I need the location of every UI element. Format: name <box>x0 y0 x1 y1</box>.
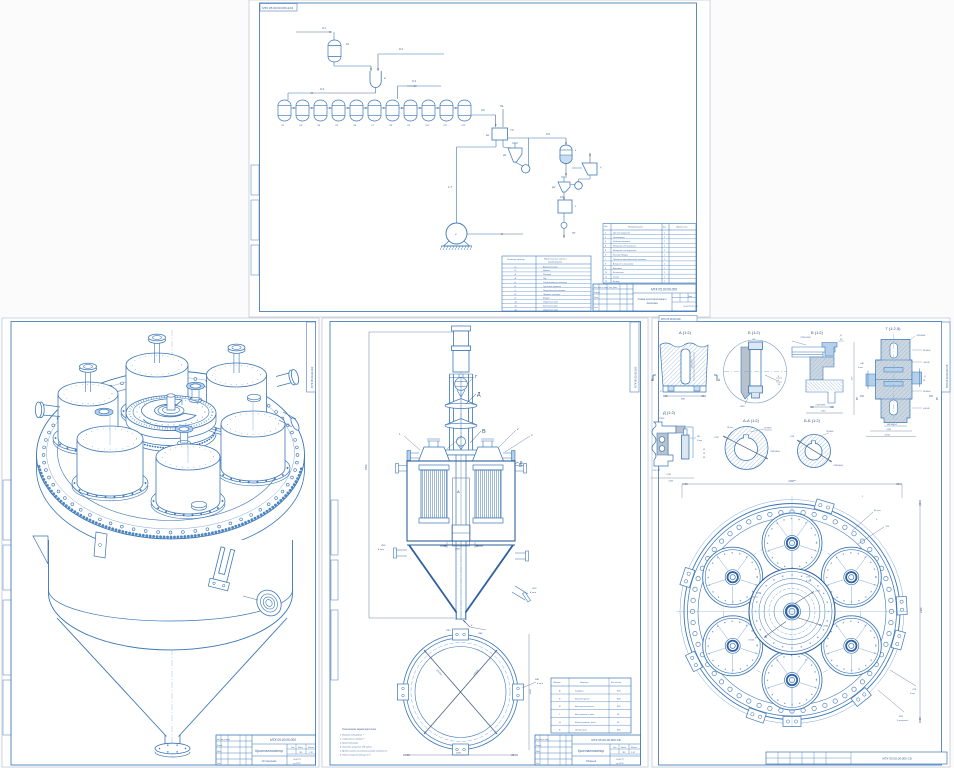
svg-text:5: 5 <box>519 463 522 469</box>
svg-text:гр.72-6: гр.72-6 <box>293 763 301 765</box>
svg-text:Выход В суспен: Выход В суспен <box>575 697 591 700</box>
svg-text:-9-: -9- <box>514 298 517 300</box>
svg-text:-3-: -3- <box>514 274 517 276</box>
svg-text:5. Время расхода до рабочих ус: 5. Время расхода до рабочих условий част… <box>340 750 388 753</box>
svg-text:Утв.: Утв. <box>536 763 540 765</box>
svg-text:42 отв: 42 отв <box>874 509 881 512</box>
svg-text:Обознач.: Обознач. <box>553 682 561 684</box>
svg-text:Конденсат: Конденсат <box>613 271 624 274</box>
svg-text:30 Н8/е8: 30 Н8/е8 <box>923 350 930 352</box>
svg-text:Бункер: Бункер <box>613 281 620 283</box>
svg-text:Суспензия диоксана: Суспензия диоксана <box>543 285 561 288</box>
svg-text:Вход промывн. воды: Вход промывн. воды <box>575 713 595 716</box>
svg-text:∅107: ∅107 <box>714 436 720 439</box>
svg-text:16 отв: 16 отв <box>727 427 733 429</box>
svg-text:2 отв: 2 отв <box>696 440 702 442</box>
svg-text:1: 1 <box>664 255 665 257</box>
svg-text:МТК 05.00.00.000 СБ: МТК 05.00.00.000 СБ <box>591 738 620 742</box>
svg-text:Свободноводная жидкость: Свободноводная жидкость <box>543 281 567 284</box>
svg-text:Разраб.: Разраб. <box>594 292 601 294</box>
svg-text:Лит: Лит <box>290 747 295 749</box>
svg-text:Раствор: Раствор <box>543 274 551 276</box>
svg-text:МТК 05.00.00.000: МТК 05.00.00.000 <box>661 318 681 321</box>
svg-text:-10-: -10- <box>514 302 518 304</box>
svg-text:0.4: 0.4 <box>412 79 416 83</box>
svg-text:∅230: ∅230 <box>815 590 821 593</box>
svg-text:1: 1 <box>664 241 665 243</box>
svg-text:ГП: ГП <box>572 231 575 235</box>
svg-text:1: 1 <box>664 281 665 283</box>
svg-text:12 Н9/h9: 12 Н9/h9 <box>764 428 771 430</box>
svg-text:4 отв: 4 отв <box>806 580 811 583</box>
svg-text:Приёмник отработанной кислоты: Приёмник отработанной кислоты <box>613 258 647 261</box>
svg-text:Диоксан: Диоксан <box>542 270 550 272</box>
svg-text:Отработанная кислота: Отработанная кислота <box>543 290 565 292</box>
svg-text:Лит: Лит <box>612 747 617 749</box>
svg-text:Пров.: Пров. <box>536 751 541 753</box>
svg-text:4 отв: 4 отв <box>378 548 385 551</box>
svg-text:Утв.: Утв. <box>594 307 598 309</box>
svg-text:гр.72-6: гр.72-6 <box>616 763 624 765</box>
svg-text:Рубашка кислоты: Рубашка кислоты <box>613 241 631 243</box>
svg-text:1: 1 <box>605 232 606 234</box>
svg-text:Примечание: Примечание <box>676 227 688 229</box>
svg-text:Лист: Лист <box>687 296 693 298</box>
svg-text:30 Н8/е8: 30 Н8/е8 <box>923 391 930 393</box>
svg-text:СибГТУ ПС-72: СибГТУ ПС-72 <box>683 306 699 308</box>
svg-text:7.8: 7.8 <box>510 128 514 132</box>
svg-text:2160: 2160 <box>920 607 923 614</box>
svg-text:6. Объём аппарата 10м.куб 1 м³: 6. Объём аппарата 10м.куб 1 м³ <box>340 754 371 757</box>
svg-text:-6-: -6- <box>514 286 517 288</box>
svg-text:МТК 05.00.00.000: МТК 05.00.00.000 <box>270 738 296 742</box>
svg-text:0.1: 0.1 <box>322 26 326 30</box>
svg-text:Г (1:2,5): Г (1:2,5) <box>886 326 902 331</box>
svg-text:1: 1 <box>664 259 665 261</box>
svg-text:1: 1 <box>664 246 665 248</box>
svg-text:Название: Название <box>580 682 588 684</box>
svg-text:0.6: 0.6 <box>546 132 550 136</box>
svg-text:Вакуум: Вакуум <box>543 298 550 300</box>
svg-text:∅56 Н8: ∅56 Н8 <box>923 407 929 410</box>
svg-text:Наименование среды в: Наименование среды в <box>544 258 568 261</box>
svg-text:11: 11 <box>605 277 607 279</box>
svg-text:-8-: -8- <box>514 294 517 296</box>
svg-text:-2-: -2- <box>514 270 517 272</box>
svg-text:Д (1:2): Д (1:2) <box>663 410 676 415</box>
svg-text:МТК 05.00.00.000 А2Э: МТК 05.00.00.000 А2Э <box>262 6 293 10</box>
svg-text:-4-: -4- <box>514 277 517 280</box>
svg-text:1. Ёмкость 10м.куб/час **: 1. Ёмкость 10м.куб/час ** <box>340 734 365 737</box>
svg-text:м: м <box>384 77 386 80</box>
svg-text:4: 4 <box>605 245 606 248</box>
svg-text:Пар: Пар <box>543 278 546 280</box>
svg-text:Испарить для осушения: Испарить для осушения <box>613 249 637 252</box>
svg-text:Масшт: Масшт <box>631 747 638 749</box>
svg-text:∅640: ∅640 <box>823 625 829 628</box>
svg-text:1: 1 <box>664 268 665 270</box>
svg-text:4. Частота вращения 120 об/мин: 4. Частота вращения 120 об/мин <box>340 746 373 749</box>
svg-text:∅42 Н8/к8: ∅42 Н8/к8 <box>916 334 926 337</box>
svg-text:Схема кристаллизации: Схема кристаллизации <box>638 297 667 301</box>
svg-text:-5-: -5- <box>514 282 517 284</box>
svg-text:∅42 Н8/к8: ∅42 Н8/к8 <box>770 450 781 453</box>
svg-text:СибГТУ: СибГТУ <box>293 759 302 761</box>
svg-text:6 отв: 6 отв <box>858 367 863 369</box>
svg-text:2200: 2200 <box>530 688 532 695</box>
svg-text:МТК 05.00.00.000 СБ: МТК 05.00.00.000 СБ <box>946 364 949 388</box>
svg-text:∅36 Н8/к8: ∅36 Н8/к8 <box>833 464 844 467</box>
svg-text:4400: 4400 <box>455 548 461 551</box>
svg-text:Масса: Масса <box>621 747 626 749</box>
svg-text:Кристаллизатор: Кристаллизатор <box>255 749 283 753</box>
svg-text:Уравнемеры: Уравнемеры <box>613 237 625 239</box>
svg-text:∅56 Н8: ∅56 Н8 <box>923 361 929 364</box>
svg-text:1: 1 <box>664 272 665 274</box>
svg-text:10 Н9/h9: 10 Н9/h9 <box>826 431 833 433</box>
svg-text:1: 1 <box>664 232 665 234</box>
svg-text:Испарить для диоксана: Испарить для диоксана <box>613 245 636 248</box>
svg-text:2200: 2200 <box>455 753 462 755</box>
svg-text:6 отв: 6 отв <box>910 693 915 695</box>
svg-text:Цех для осушения: Цех для осушения <box>613 231 631 234</box>
svg-text:∅125 Н9/f9: ∅125 Н9/f9 <box>815 404 826 407</box>
svg-text:Техническая характеристика: Техническая характеристика <box>342 728 377 731</box>
svg-text:Условное обознач.: Условное обознач. <box>507 259 525 261</box>
svg-text:0.6: 0.6 <box>481 108 485 112</box>
svg-text:∅4720: ∅4720 <box>884 434 891 437</box>
svg-text:Д: Д <box>477 392 481 398</box>
svg-text:Разраб: Разраб <box>536 745 541 747</box>
svg-text:∅40: ∅40 <box>860 362 864 365</box>
svg-text:Аппарат с мешалкой: Аппарат с мешалкой <box>612 262 634 265</box>
svg-text:10 тетрадь: 10 тетрадь <box>262 759 278 763</box>
svg-text:М42 Н8/7е8: М42 Н8/7е8 <box>887 423 897 426</box>
svg-text:Разраб: Разраб <box>217 745 222 747</box>
svg-text:Кристаллизатор: Кристаллизатор <box>578 749 604 753</box>
svg-text:∅76/f9: ∅76/f9 <box>658 417 665 420</box>
svg-text:МТК 05.00.00.000: МТК 05.00.00.000 <box>651 288 677 292</box>
svg-text:В (1:2): В (1:2) <box>811 330 824 335</box>
svg-text:Масса: Масса <box>298 747 303 749</box>
svg-text:Б (1:2): Б (1:2) <box>748 330 761 335</box>
svg-text:∅125 Н9/f9: ∅125 Н9/f9 <box>800 336 811 339</box>
svg-text:Абсолют: Абсолют <box>612 267 622 270</box>
svg-text:СибГТУ: СибГТУ <box>616 759 625 761</box>
svg-text:2160**: 2160** <box>787 480 795 483</box>
svg-text:0.3: 0.3 <box>320 87 324 91</box>
svg-text:Масшт: Масшт <box>308 747 315 749</box>
svg-text:24 отв: 24 отв <box>751 596 758 599</box>
svg-text:Пров.: Пров. <box>217 751 222 753</box>
svg-text:трубопроводе: трубопроводе <box>548 261 563 264</box>
svg-text:МТК 05.00.00.000 СБ: МТК 05.00.00.000 СБ <box>882 757 911 761</box>
svg-text:3. Кристаллизация: 3. Кристаллизация <box>340 743 359 745</box>
svg-text:МТК 05.00.00.000: МТК 05.00.00.000 <box>634 366 638 388</box>
svg-text:Утв.: Утв. <box>217 763 221 765</box>
svg-text:1.7: 1.7 <box>448 185 452 189</box>
svg-text:Выход промывн. воды: Выход промывн. воды <box>575 721 596 724</box>
svg-text:6 отверстий: 6 отверстий <box>897 719 908 722</box>
svg-text:1: 1 <box>664 263 665 265</box>
svg-text:4 отв: 4 отв <box>537 682 544 685</box>
svg-text:Оборотная вода: Оборотная вода <box>543 301 558 304</box>
svg-text:Наименование: Наименование <box>628 227 644 229</box>
svg-text:-11-: -11- <box>514 306 518 308</box>
svg-text:А (1:2): А (1:2) <box>679 330 692 335</box>
svg-text:Фильтр Вакуум: Фильтр Вакуум <box>613 254 629 257</box>
svg-text:В: В <box>482 429 486 435</box>
svg-text:Сборный: Сборный <box>586 760 597 763</box>
svg-text:Промывн. раствор: Промывн. раствор <box>543 294 560 296</box>
svg-text:Поз: Поз <box>604 226 607 228</box>
svg-text:∅1120: ∅1120 <box>748 639 755 642</box>
svg-text:30 Н11/г11: 30 Н11/г11 <box>692 359 694 368</box>
svg-text:Пров.: Пров. <box>594 297 599 299</box>
svg-text:Конденсат пара: Конденсат пара <box>543 305 558 308</box>
svg-text:-12-: -12- <box>514 310 518 312</box>
svg-text:диоксана: диоксана <box>646 301 658 305</box>
svg-text:1: 1 <box>664 237 665 239</box>
svg-text:1: 1 <box>664 250 665 252</box>
svg-text:МТК 05.00.00.000: МТК 05.00.00.000 <box>310 366 314 388</box>
svg-text:0.2: 0.2 <box>399 47 403 51</box>
svg-text:Отбор проб: Отбор проб <box>575 730 587 732</box>
svg-text:А: А <box>457 489 460 494</box>
svg-text:2. Габаритные размеры **: 2. Габаритные размеры ** <box>339 739 365 741</box>
svg-text:Кол. едениц: Кол. едениц <box>611 681 621 684</box>
svg-text:Аммиачная вода: Аммиачная вода <box>542 265 558 268</box>
svg-text:∅167 Н8: ∅167 Н8 <box>652 469 661 472</box>
svg-text:1: 1 <box>664 277 665 279</box>
svg-text:Вход среды конденс: Вход среды конденс <box>575 705 594 708</box>
svg-text:Загрузка: Загрузка <box>575 691 584 693</box>
svg-text:Оборотная вода: Оборотная вода <box>543 309 558 312</box>
svg-text:А-А (1:2): А-А (1:2) <box>743 418 760 423</box>
svg-text:Б-Б (1:2): Б-Б (1:2) <box>804 418 821 423</box>
svg-text:-1-: -1- <box>514 266 517 268</box>
svg-text:Смола: Смола <box>613 277 620 279</box>
svg-text:-7-: -7- <box>514 290 517 292</box>
svg-text:4 отв: 4 отв <box>530 591 537 594</box>
svg-text:7500: 7500 <box>365 464 368 470</box>
